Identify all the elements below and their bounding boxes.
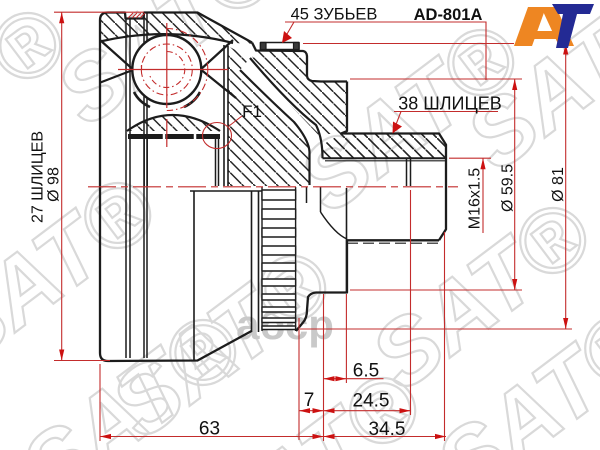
svg-text:38 ШЛИЦЕВ: 38 ШЛИЦЕВ — [398, 94, 502, 114]
svg-text:7: 7 — [304, 390, 315, 411]
svg-text:Ø 81: Ø 81 — [550, 167, 567, 202]
svg-text:34.5: 34.5 — [369, 419, 406, 440]
svg-text:F1: F1 — [242, 102, 262, 121]
svg-text:6.5: 6.5 — [353, 361, 379, 382]
svg-text:AD-801A: AD-801A — [414, 6, 483, 24]
svg-text:Ø 98: Ø 98 — [46, 167, 63, 202]
svg-text:24.5: 24.5 — [353, 391, 390, 412]
svg-text:M16x1.5: M16x1.5 — [467, 168, 484, 229]
svg-text:63: 63 — [199, 419, 220, 440]
svg-text:45 ЗУБЬЕВ: 45 ЗУБЬЕВ — [291, 6, 378, 24]
svg-text:Ø 59.5: Ø 59.5 — [500, 164, 517, 212]
svg-text:27 ШЛИЦЕВ: 27 ШЛИЦЕВ — [30, 131, 47, 223]
